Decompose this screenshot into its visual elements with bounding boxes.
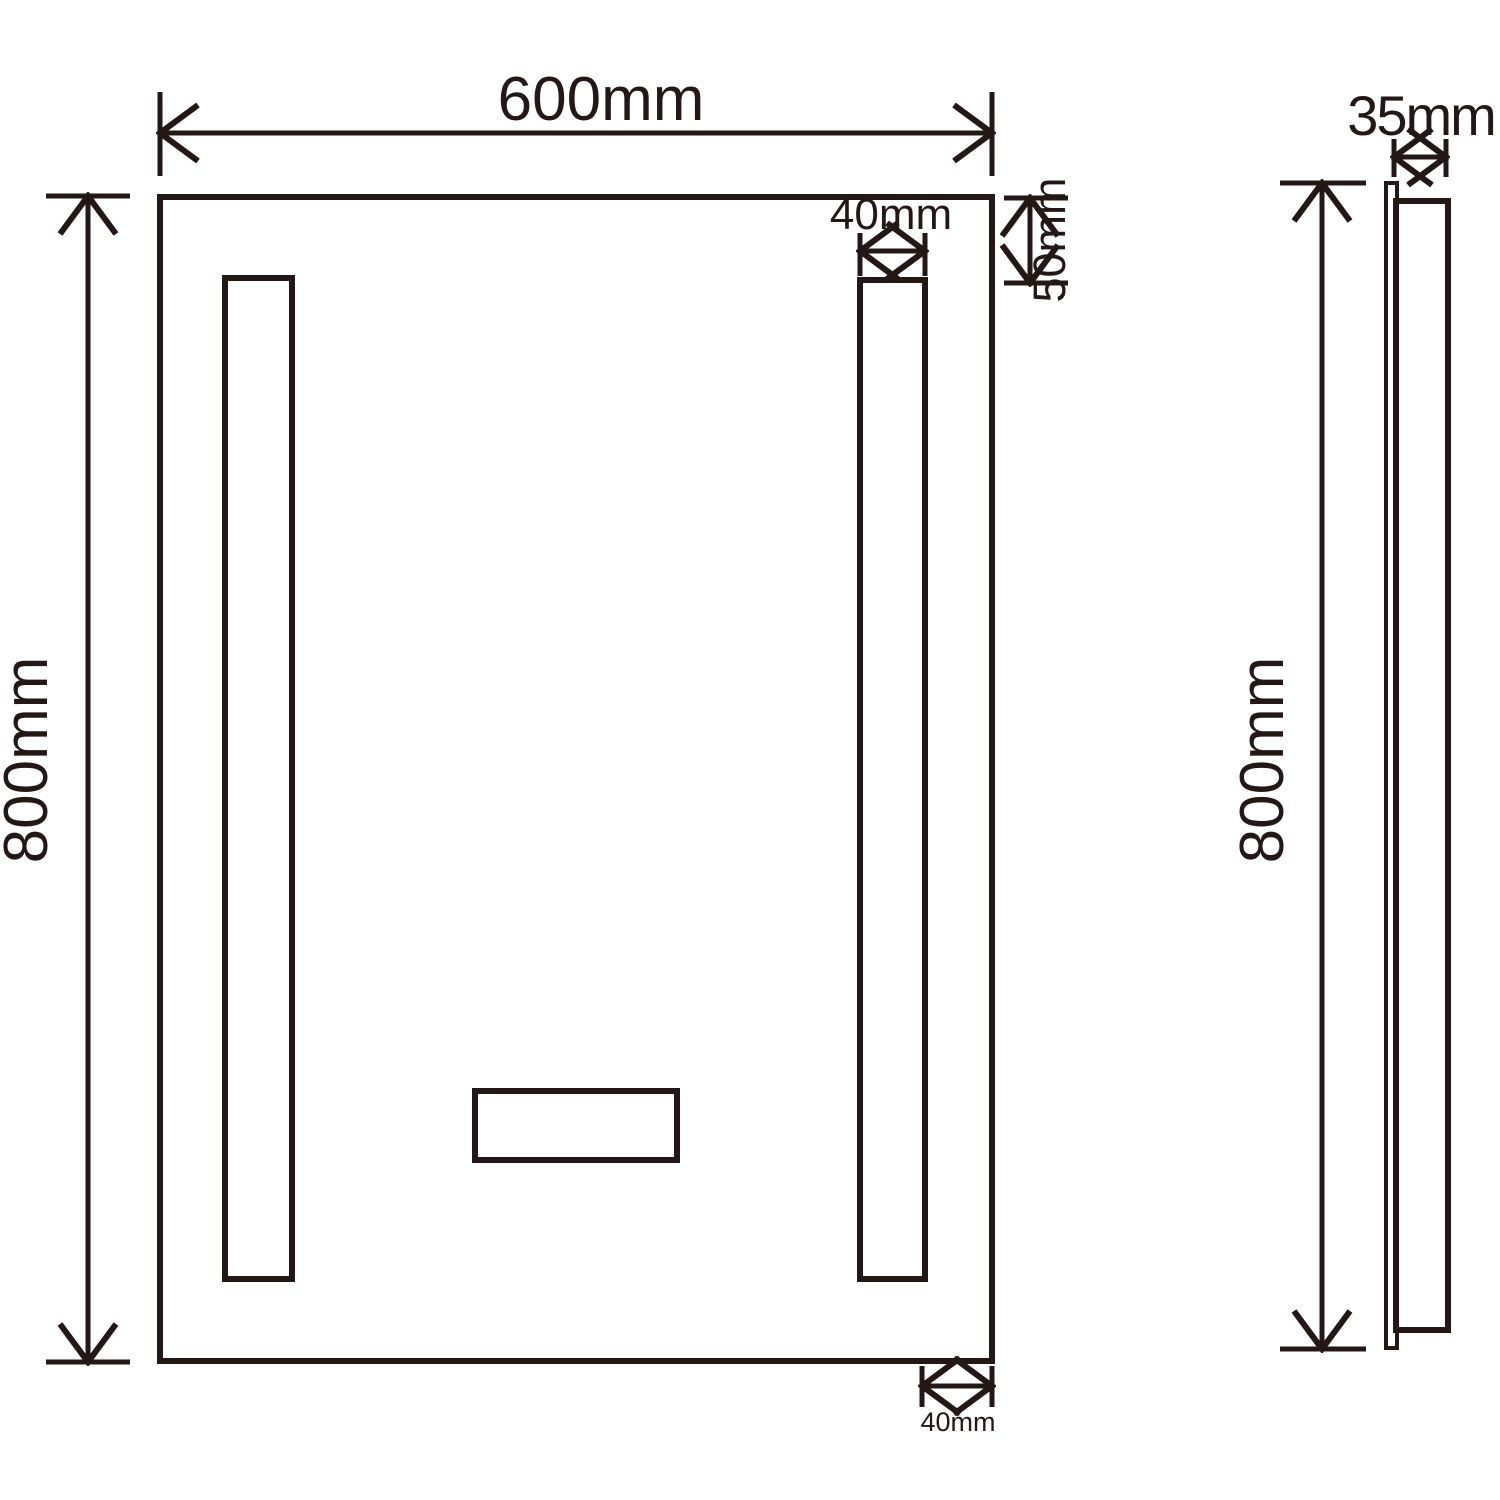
- dim-side-height: 800mm: [1228, 183, 1366, 1349]
- left-light-strip: [225, 278, 292, 1279]
- dim-front-height: 800mm: [0, 196, 130, 1362]
- front-height-label: 800mm: [0, 657, 61, 864]
- side-housing-box: [1396, 201, 1448, 1330]
- dim-strip-side-gap: 40mm: [920, 1366, 995, 1437]
- strip-side-gap-label: 40mm: [920, 1407, 995, 1437]
- mirror-outline: [160, 197, 992, 1361]
- front-view: 600mm 800mm 40mm 50mm: [0, 65, 1075, 1437]
- drawing-svg: 600mm 800mm 40mm 50mm: [0, 0, 1500, 1500]
- display-window: [475, 1091, 677, 1160]
- side-view: 35mm 800mm: [1228, 84, 1495, 1349]
- front-width-label: 600mm: [498, 65, 705, 134]
- strip-width-label: 40mm: [830, 190, 952, 239]
- dim-front-width: 600mm: [160, 65, 992, 176]
- dim-strip-width: 40mm: [830, 190, 952, 276]
- dim-side-depth: 35mm: [1347, 84, 1495, 177]
- strip-top-gap-label: 50mm: [1024, 177, 1075, 302]
- side-height-label: 800mm: [1228, 657, 1297, 864]
- right-light-strip: [860, 280, 925, 1279]
- side-depth-label: 35mm: [1347, 84, 1495, 147]
- mirror-dimension-drawing: 600mm 800mm 40mm 50mm: [0, 0, 1500, 1500]
- dim-strip-top-gap: 50mm: [1004, 177, 1075, 302]
